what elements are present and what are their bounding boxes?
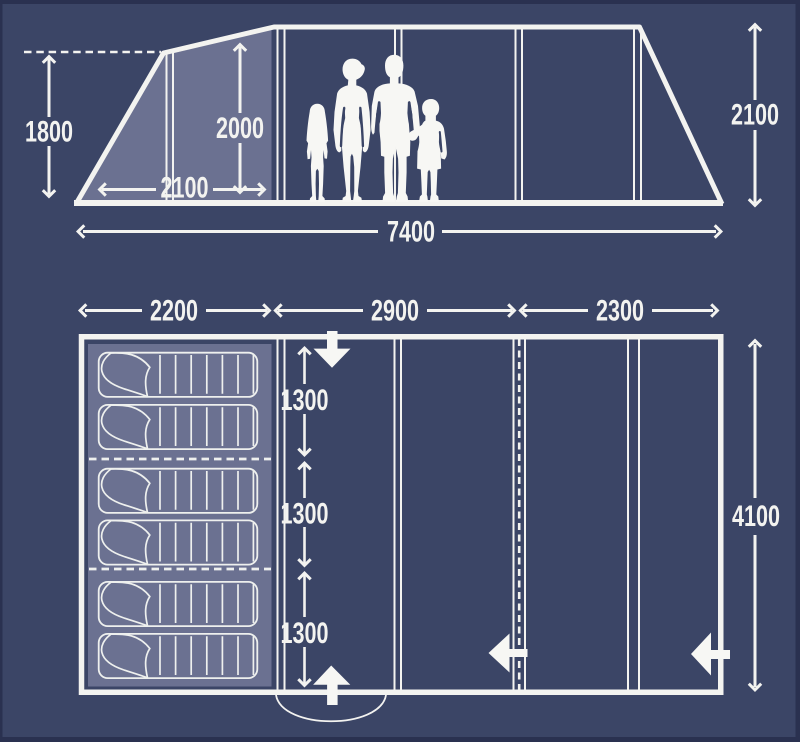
- svg-text:2100: 2100: [161, 172, 209, 205]
- svg-text:2100: 2100: [731, 99, 779, 132]
- svg-text:1800: 1800: [25, 116, 73, 149]
- svg-text:1300: 1300: [281, 384, 329, 417]
- svg-text:1300: 1300: [281, 617, 329, 650]
- svg-text:2300: 2300: [596, 295, 644, 328]
- svg-text:7400: 7400: [387, 216, 435, 249]
- svg-text:1300: 1300: [281, 497, 329, 530]
- svg-text:2000: 2000: [216, 112, 264, 145]
- svg-text:2900: 2900: [371, 295, 419, 328]
- svg-text:4100: 4100: [732, 500, 780, 533]
- svg-text:2200: 2200: [150, 295, 198, 328]
